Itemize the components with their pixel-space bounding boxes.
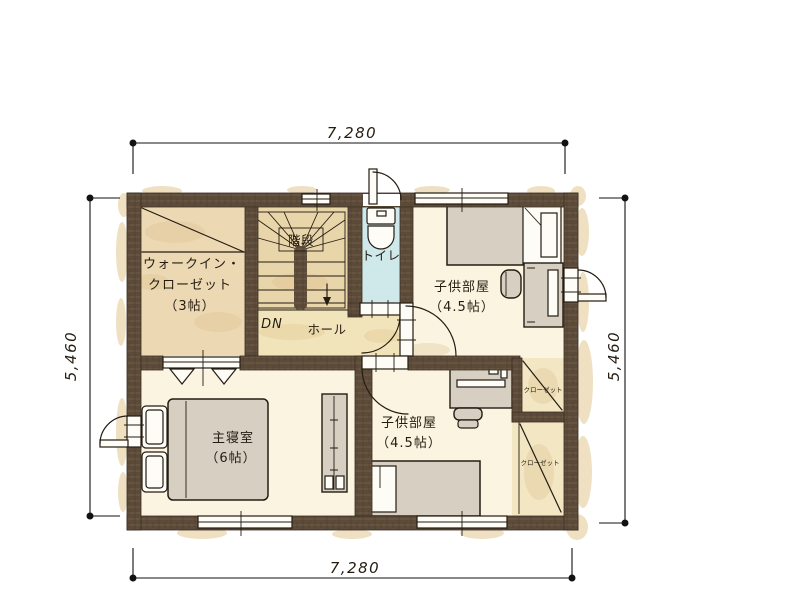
stair-center-wall bbox=[294, 246, 307, 310]
dim-top-value: 7,280 bbox=[327, 124, 377, 142]
wic-label-line1: ウォークイン・ bbox=[143, 257, 241, 272]
floor-plan-drawing: 7,280 7,280 5,460 5,460 ウォークイン・ クローゼット （… bbox=[0, 0, 800, 600]
toilet-label: トイレ bbox=[361, 248, 400, 263]
wic-label-line2: クローゼット bbox=[148, 278, 232, 293]
master-size-label: （6帖） bbox=[205, 451, 256, 466]
child2-chair bbox=[454, 408, 482, 428]
toilet-icon bbox=[367, 208, 395, 249]
child1-chair bbox=[501, 270, 521, 298]
hall-label: ホール bbox=[307, 322, 346, 337]
floor-plan-page: 7,280 7,280 5,460 5,460 ウォークイン・ クローゼット （… bbox=[0, 0, 800, 600]
child2-desk bbox=[450, 366, 512, 408]
dim-right-value: 5,460 bbox=[605, 331, 623, 381]
child1-bed bbox=[447, 205, 561, 265]
child2-bed bbox=[358, 461, 480, 516]
wall-wic-stairs bbox=[245, 207, 258, 356]
wall-top bbox=[127, 193, 578, 207]
wall-left bbox=[127, 193, 141, 530]
child1-desk bbox=[524, 263, 563, 327]
child2-label: 子供部屋 bbox=[381, 416, 437, 431]
wall-bottom bbox=[127, 516, 578, 530]
dim-left-value: 5,460 bbox=[62, 331, 80, 381]
dimension-right: 5,460 bbox=[599, 195, 629, 527]
dimension-left: 5,460 bbox=[62, 195, 120, 520]
closet1-label: クローゼット bbox=[524, 385, 563, 394]
wic-size-label: （3帖） bbox=[164, 299, 215, 314]
wall-hall-master-a bbox=[141, 356, 163, 370]
wall-child1-child2 bbox=[408, 356, 520, 370]
stairs-label: 階段 bbox=[288, 233, 314, 248]
dimension-bottom: 7,280 bbox=[130, 548, 576, 582]
master-label: 主寝室 bbox=[212, 430, 254, 446]
wall-toilet-child1 bbox=[400, 207, 413, 303]
child1-label: 子供部屋 bbox=[434, 280, 490, 295]
child1-size-label: （4.5帖） bbox=[429, 300, 495, 315]
wall-right bbox=[564, 193, 578, 530]
closet2-label: クローゼット bbox=[521, 458, 560, 467]
wall-hall-master-b bbox=[240, 356, 362, 370]
dim-bottom-value: 7,280 bbox=[330, 559, 380, 577]
master-chest bbox=[322, 394, 347, 492]
dimension-top: 7,280 bbox=[130, 124, 569, 174]
wall-closet1-bottom bbox=[512, 412, 564, 422]
child2-size-label: （4.5帖） bbox=[376, 436, 442, 451]
wall-stairs-toilet bbox=[348, 207, 362, 317]
stairs-dn-label: DN bbox=[261, 317, 283, 332]
toilet-exterior-door bbox=[363, 169, 401, 206]
